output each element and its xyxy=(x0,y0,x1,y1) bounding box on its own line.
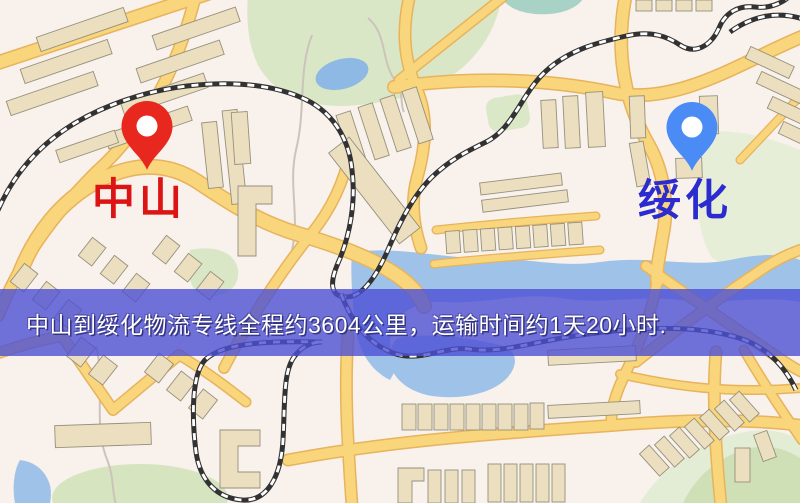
map-canvas xyxy=(0,0,800,503)
origin-marker xyxy=(118,100,176,177)
route-banner-text: 中山到绥化物流专线全程约3604公里，运输时间约1天20小时. xyxy=(26,306,666,340)
logistics-route-map: 中山 绥化 中山到绥化物流专线全程约3604公里，运输时间约1天20小时. xyxy=(0,0,800,503)
destination-label: 绥化 xyxy=(638,180,732,223)
map-pin-icon xyxy=(118,100,176,172)
origin-label: 中山 xyxy=(92,179,186,222)
route-banner: 中山到绥化物流专线全程约3604公里，运输时间约1天20小时. xyxy=(0,289,800,356)
map-pin-icon xyxy=(663,101,721,173)
destination-marker xyxy=(663,101,721,178)
